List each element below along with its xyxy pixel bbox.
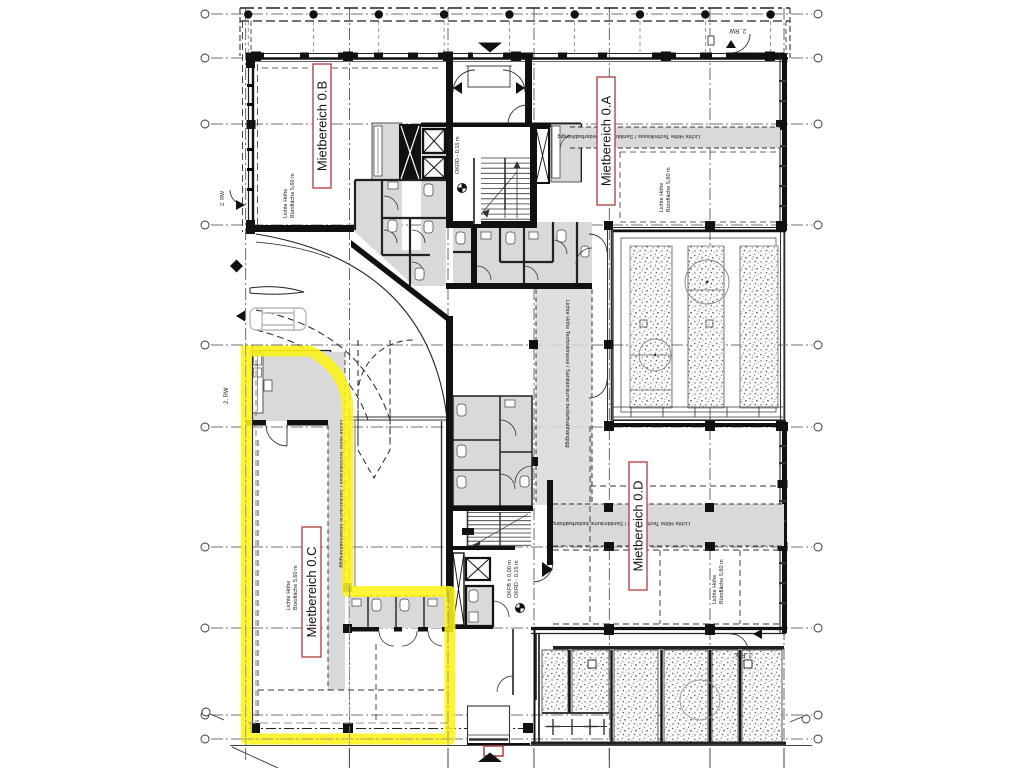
svg-text:Bürofläche 5,60 m: Bürofläche 5,60 m <box>719 559 725 604</box>
svg-text:OKRD - 0,15 m: OKRD - 0,15 m <box>514 560 520 598</box>
svg-text:Lichte Höhe Techniklasse / San: Lichte Höhe Techniklasse / Sanitärräume … <box>558 133 700 139</box>
svg-text:Lichte Höhe: Lichte Höhe <box>286 581 292 610</box>
svg-text:2. RW: 2. RW <box>224 387 230 404</box>
svg-text:OKRD - 0,15 m: OKRD - 0,15 m <box>455 136 461 174</box>
svg-text:Lichte Höhe: Lichte Höhe <box>659 183 665 212</box>
svg-text:2. RW: 2. RW <box>729 27 746 33</box>
svg-text:Lichte Höhe Techniktrasse / Sa: Lichte Höhe Techniktrasse / Sanitärräume… <box>564 300 570 448</box>
svg-text:Lichte Höhe: Lichte Höhe <box>712 575 718 604</box>
svg-text:Mietbereich 0.C: Mietbereich 0.C <box>304 546 319 637</box>
svg-text:Lichte Höhe: Lichte Höhe <box>283 189 289 218</box>
svg-text:Bürofläche 5,60 m: Bürofläche 5,60 m <box>666 167 672 212</box>
svg-text:Bürofläche 5,60 m: Bürofläche 5,60 m <box>290 173 296 218</box>
svg-text:OKFB ± 0,00 m: OKFB ± 0,00 m <box>448 136 454 174</box>
svg-text:Mietbereich 0.D: Mietbereich 0.D <box>631 480 646 571</box>
svg-text:Lichte Höhe Techniklasse / San: Lichte Höhe Techniklasse / Sanitärräume … <box>548 520 690 526</box>
svg-text:OKFB ± 0,00 m: OKFB ± 0,00 m <box>507 560 513 598</box>
svg-text:2. RW: 2. RW <box>220 190 226 206</box>
svg-text:Mietbereich 0.A: Mietbereich 0.A <box>599 96 614 187</box>
svg-text:Bürofläche 5,60 m: Bürofläche 5,60 m <box>293 565 299 610</box>
svg-text:2. RW: 2. RW <box>735 651 752 657</box>
svg-text:Mietbereich 0.B: Mietbereich 0.B <box>315 81 330 171</box>
